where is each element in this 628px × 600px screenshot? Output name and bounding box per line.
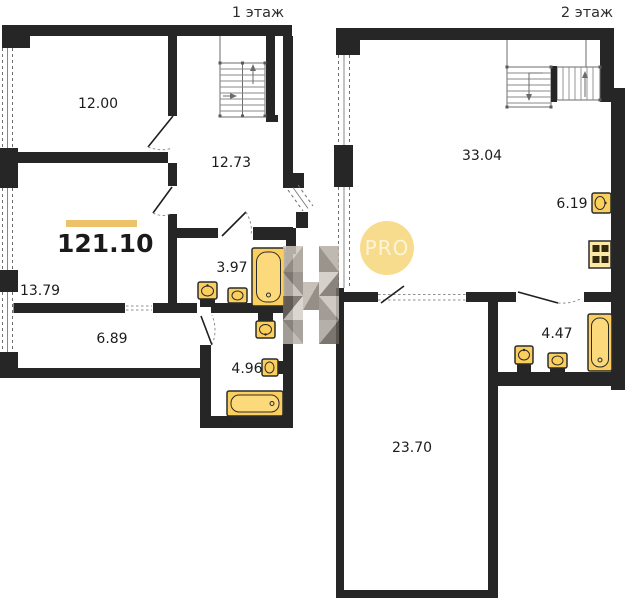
room-area-label: 4.96 [231, 361, 262, 377]
room-area-label: 13.79 [20, 283, 60, 299]
bathtub-icon [227, 391, 283, 416]
corner-bay-window-icon [288, 185, 313, 211]
door-icon [153, 187, 172, 216]
pro-badge-text: PRO [365, 236, 410, 260]
toilet-icon [548, 353, 567, 372]
window-icon [2, 292, 14, 352]
window-icon [337, 187, 351, 288]
sink-icon [592, 193, 611, 213]
toilet-icon [228, 288, 247, 308]
walls-level-2 [334, 28, 625, 598]
total-area-value: 121.10 [57, 229, 153, 258]
sink-icon [198, 282, 217, 307]
door-icon [518, 292, 582, 303]
fixtures-kitchen [589, 193, 611, 268]
door-icon [148, 116, 173, 150]
floor-1-title: 1 этаж [232, 5, 284, 21]
door-icon [222, 212, 251, 236]
sliding-door-opening [378, 286, 466, 303]
room-area-label: 6.89 [96, 331, 127, 347]
room-area-label: 23.70 [392, 440, 432, 456]
room-area-label: 6.19 [556, 196, 587, 212]
window-icon [2, 48, 14, 148]
room-area-label: 3.97 [216, 260, 247, 276]
room-area-label: 12.73 [211, 155, 251, 171]
fixtures-bathroom-4-47 [515, 314, 612, 372]
floor-plan-level-1: 12.00 12.73 13.79 6.89 3.97 4.96 121.10 … [0, 5, 313, 428]
doorway-opening [126, 306, 152, 310]
floor-2-title: 2 этаж [561, 5, 613, 21]
room-area-label: 4.47 [541, 326, 572, 342]
staircase-level-2 [506, 40, 602, 109]
door-icon [201, 315, 215, 345]
sink-icon [515, 346, 533, 372]
staircase-level-1 [219, 36, 267, 118]
bathtub-icon [252, 248, 285, 306]
pro-badge: PRO [360, 221, 414, 275]
total-area-block: 121.10 [57, 220, 153, 258]
sink-icon [256, 313, 275, 338]
window-icon [337, 55, 351, 145]
toilet-icon [262, 359, 283, 376]
bathtub-icon [588, 314, 612, 371]
room-area-label: 33.04 [462, 148, 502, 164]
fixtures-bathroom-3-97 [198, 248, 285, 308]
floor-plan-drawing: 12.00 12.73 13.79 6.89 3.97 4.96 121.10 … [0, 0, 628, 600]
room-area-label: 12.00 [78, 96, 118, 112]
faceted-letter-logo-icon [283, 246, 339, 344]
total-area-highlight-bar [66, 220, 137, 227]
window-icon [2, 188, 14, 270]
floor-plan-level-2: 33.04 6.19 4.47 23.70 2 этаж [334, 5, 625, 598]
stove-icon [589, 241, 611, 268]
floor-plan-canvas: 12.00 12.73 13.79 6.89 3.97 4.96 121.10 … [0, 0, 628, 600]
